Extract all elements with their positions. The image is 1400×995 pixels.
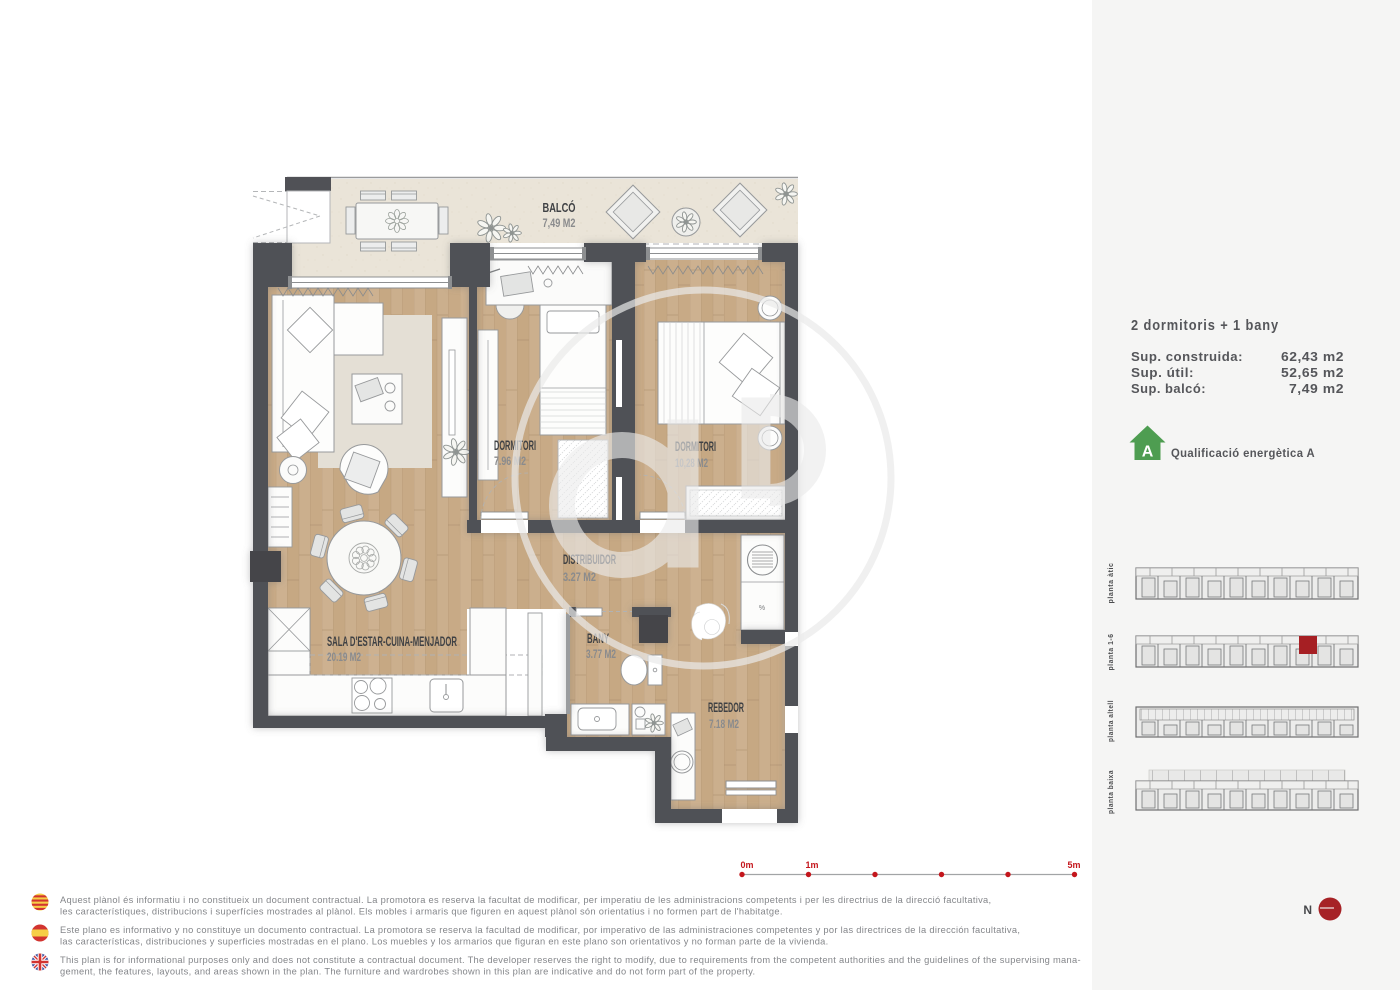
svg-text:5m: 5m [1068,860,1081,871]
svg-text:3.77 M2: 3.77 M2 [586,649,616,661]
svg-text:2 dormitoris + 1 bany: 2 dormitoris + 1 bany [1131,318,1279,334]
svg-text:7.18 M2: 7.18 M2 [709,719,739,731]
svg-text:las características, distribuc: las características, distribuciones y su… [60,937,829,947]
svg-text:N: N [1303,903,1312,917]
svg-text:Qualificació energètica A: Qualificació energètica A [1171,448,1315,460]
svg-text:3.27 M2: 3.27 M2 [563,572,596,584]
svg-text:Aquest plànol és informatiu i: Aquest plànol és informatiu i no constit… [60,895,991,905]
svg-text:%: % [759,605,765,612]
svg-text:7,49 m2: 7,49 m2 [1289,381,1344,396]
svg-text:52,65 m2: 52,65 m2 [1281,365,1344,380]
svg-text:BALCÓ: BALCÓ [543,200,576,215]
svg-text:20.19 M2: 20.19 M2 [327,652,361,664]
svg-text:0m: 0m [741,860,754,871]
svg-text:planta àtic: planta àtic [1106,563,1115,604]
svg-text:les característiques, distribu: les característiques, distribucions i su… [60,907,783,917]
svg-text:REBEDOR: REBEDOR [708,700,744,715]
svg-text:Sup. construida:: Sup. construida: [1131,349,1243,364]
svg-text:planta 1-6: planta 1-6 [1106,634,1115,671]
svg-text:gement, the features, layouts,: gement, the features, layouts, and areas… [60,967,755,977]
svg-text:Sup. balcó:: Sup. balcó: [1131,381,1206,396]
svg-text:Sup. útil:: Sup. útil: [1131,365,1194,380]
svg-text:planta baixa: planta baixa [1106,770,1115,814]
svg-text:Este plano es informativo y no: Este plano es informativo y no constituy… [60,925,1020,935]
svg-text:1m: 1m [806,860,819,871]
svg-text:planta altell: planta altell [1106,700,1115,742]
svg-text:7.96 M2: 7.96 M2 [494,456,526,468]
svg-text:This plan is for informational: This plan is for informational purposes … [60,955,1081,965]
svg-text:62,43 m2: 62,43 m2 [1281,349,1344,364]
svg-text:A: A [1142,444,1154,461]
svg-text:SALA D'ESTAR-CUINA-MENJADOR: SALA D'ESTAR-CUINA-MENJADOR [327,634,457,649]
svg-text:7,49 M2: 7,49 M2 [543,218,576,230]
